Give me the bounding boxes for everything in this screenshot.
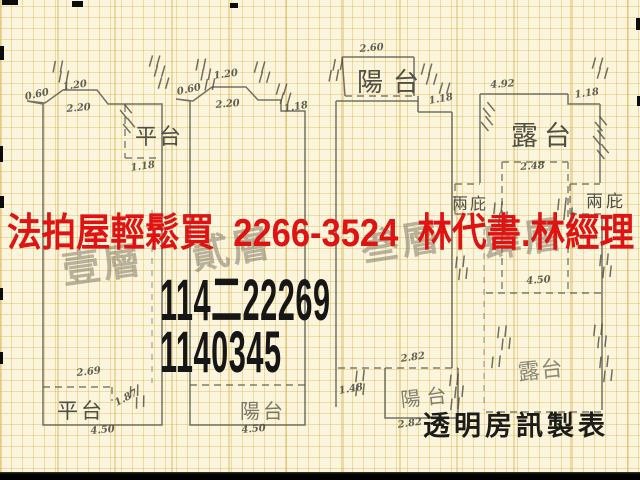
case-number-line2: 1140345 — [160, 324, 282, 382]
dim-label: 2.20 — [66, 102, 91, 115]
scan-artifact — [0, 146, 3, 162]
scan-artifact — [636, 18, 640, 30]
scan-artifact — [2, 0, 18, 5]
platform-label: 平台 — [57, 395, 105, 425]
terrace-label: 露台 — [516, 350, 565, 387]
dim-label: 4.50 — [90, 424, 115, 437]
dim-label: 4.92 — [490, 78, 515, 91]
scan-artifact — [72, 1, 83, 7]
scan-artifact — [0, 46, 4, 60]
balcony-label: 陽台 — [240, 395, 286, 424]
press-credit: 透明房訊製表 — [423, 404, 609, 443]
ad-overlay-text: 法拍屋輕鬆買 2266-3524 林代書.林經理 — [7, 212, 634, 256]
scanned-floorplan-page: 0.60 1.20 2.20 1.18 2.69 1.87 4.50 0.60 … — [0, 0, 640, 480]
dim-label: 4.50 — [526, 274, 551, 287]
platform-label: 平台 — [135, 119, 183, 151]
canopy-label: 兩庇 — [452, 190, 488, 214]
canopy-label: 兩庇 — [586, 187, 626, 212]
dim-label: 2.48 — [520, 160, 545, 173]
terrace-label: 露台 — [511, 114, 577, 153]
scan-artifact — [230, 3, 238, 8]
dim-label: 2.20 — [215, 98, 240, 111]
balcony-label: 陽台 — [357, 62, 429, 99]
dim-label: 2.60 — [359, 42, 384, 55]
scan-artifact — [0, 196, 4, 208]
dim-label: 4.50 — [241, 423, 266, 436]
scan-bottom-bar — [0, 472, 640, 480]
scan-artifact — [0, 288, 3, 300]
scan-artifact — [0, 352, 3, 364]
